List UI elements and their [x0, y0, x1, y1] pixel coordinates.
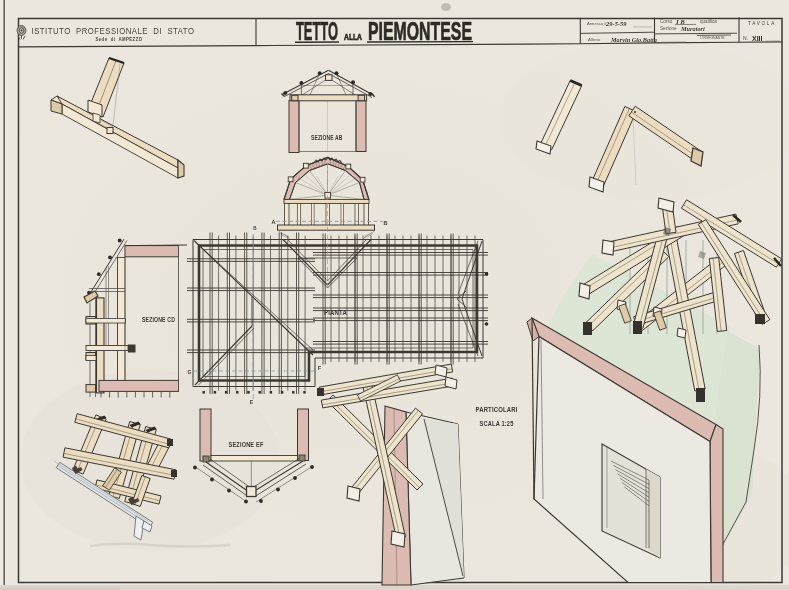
- svg-text:F: F: [318, 365, 321, 371]
- svg-text:SEZIONE CD: SEZIONE CD: [142, 316, 175, 323]
- svg-text:I B: I B: [675, 18, 685, 25]
- svg-text:Marvin Gio.Batta: Marvin Gio.Batta: [610, 36, 657, 43]
- svg-text:PARTICOLARI: PARTICOLARI: [476, 405, 518, 414]
- svg-text:Corso: Corso: [660, 19, 673, 24]
- svg-text:Sede di AMPEZZO: Sede di AMPEZZO: [96, 36, 143, 42]
- svg-text:TAVOLA: TAVOLA: [748, 19, 776, 26]
- svg-text:N.: N.: [743, 35, 748, 41]
- svg-text:A: A: [272, 219, 276, 225]
- svg-text:Allievo: Allievo: [588, 37, 601, 42]
- svg-text:G: G: [188, 369, 192, 375]
- svg-text:Annesso il: Annesso il: [587, 21, 606, 26]
- svg-text:XIII: XIII: [752, 35, 763, 42]
- svg-text:29-5-59: 29-5-59: [605, 20, 627, 27]
- svg-text:SEZIONE EF: SEZIONE EF: [229, 441, 264, 448]
- svg-text:qualifica: qualifica: [700, 19, 717, 24]
- svg-text:TETTO: TETTO: [296, 16, 338, 46]
- svg-text:L'INSEGNANTE: L'INSEGNANTE: [700, 36, 725, 40]
- svg-text:ALLA: ALLA: [344, 31, 362, 42]
- svg-text:Sezione: Sezione: [660, 26, 677, 31]
- svg-text:Muratori: Muratori: [680, 25, 705, 32]
- svg-text:SEZIONE AB: SEZIONE AB: [311, 134, 343, 141]
- svg-text:ISTITUTO PROFESSIONALE DI S: ISTITUTO PROFESSIONALE DI STATO: [32, 26, 195, 36]
- svg-text:SCALA 1:25: SCALA 1:25: [480, 419, 514, 428]
- svg-text:B: B: [384, 220, 388, 226]
- svg-text:PIANTA: PIANTA: [324, 309, 347, 316]
